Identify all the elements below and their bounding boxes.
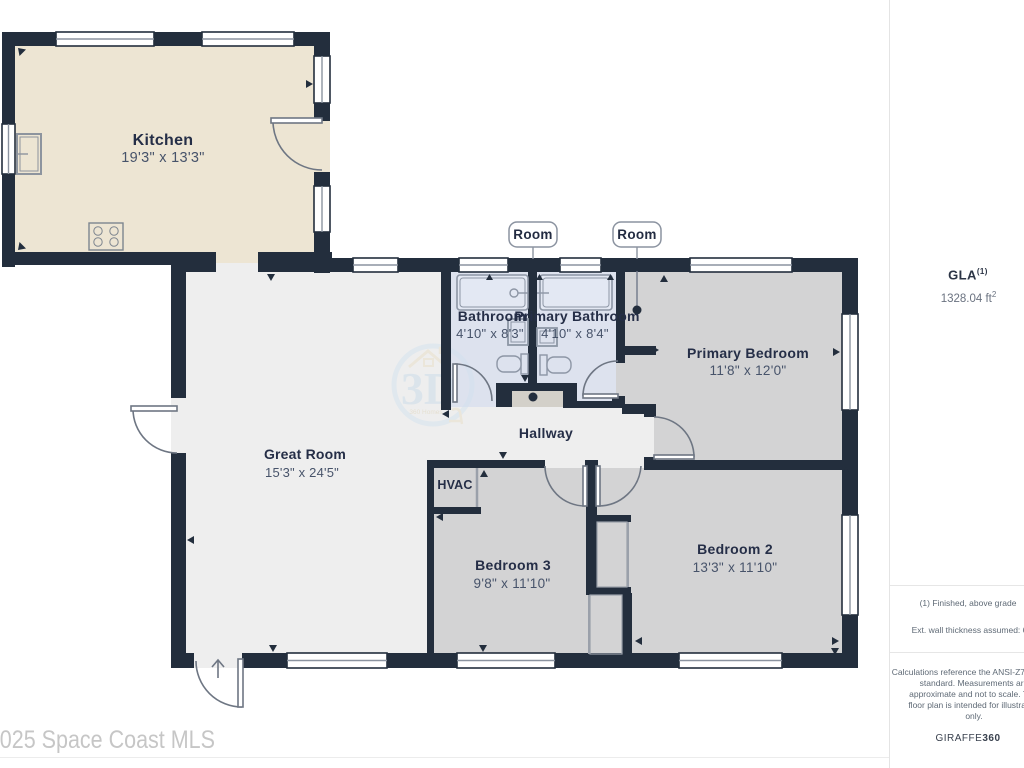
svg-text:Bedroom 3: Bedroom 3: [475, 557, 551, 573]
svg-text:13'3" x 11'10": 13'3" x 11'10": [693, 560, 778, 575]
svg-text:360 Homes: 360 Homes: [409, 409, 443, 416]
svg-text:15'3" x 24'5": 15'3" x 24'5": [265, 465, 339, 480]
svg-text:Kitchen: Kitchen: [133, 132, 194, 149]
svg-text:19'3" x 13'3": 19'3" x 13'3": [121, 150, 204, 166]
svg-text:11'8" x 12'0": 11'8" x 12'0": [710, 363, 787, 378]
svg-text:Room: Room: [617, 227, 656, 242]
svg-text:Bedroom 2: Bedroom 2: [697, 541, 773, 557]
svg-text:4'10" x 8'4": 4'10" x 8'4": [541, 326, 609, 341]
svg-text:Hallway: Hallway: [519, 425, 573, 441]
svg-text:Great Room: Great Room: [264, 446, 346, 462]
svg-text:Room: Room: [513, 227, 552, 242]
svg-text:Primary Bathroom: Primary Bathroom: [514, 308, 639, 324]
svg-text:4'10" x 8'3": 4'10" x 8'3": [456, 326, 524, 341]
svg-text:HVAC: HVAC: [437, 478, 472, 492]
svg-text:Primary Bedroom: Primary Bedroom: [687, 345, 809, 361]
svg-text:9'8" x 11'10": 9'8" x 11'10": [474, 576, 551, 591]
